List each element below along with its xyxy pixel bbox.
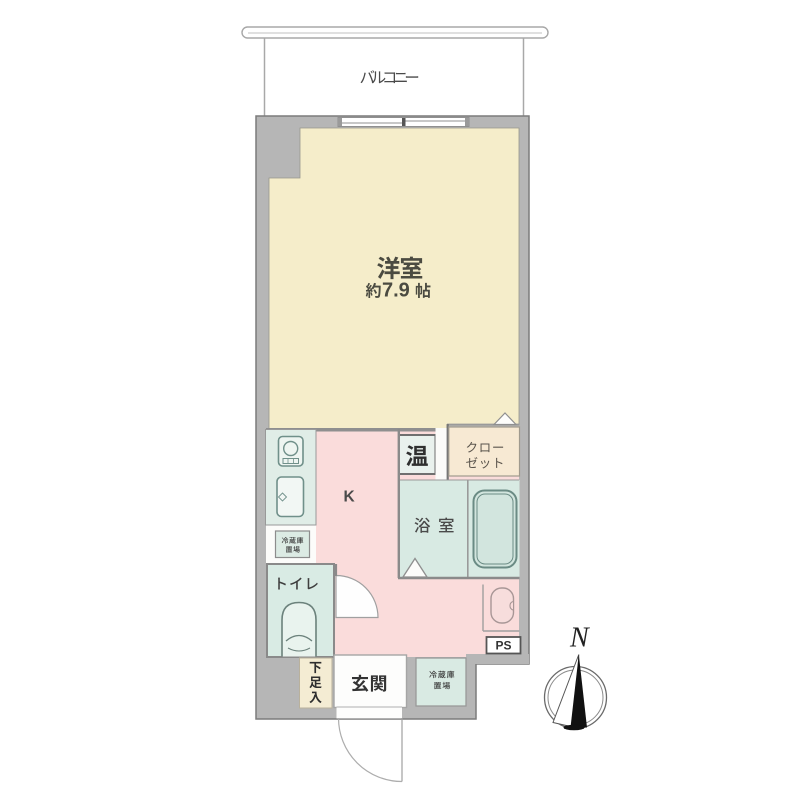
svg-text:PS: PS (495, 639, 511, 653)
svg-text:7.9: 7.9 (382, 280, 410, 302)
svg-text:N: N (569, 623, 590, 654)
svg-text:K: K (344, 489, 356, 506)
